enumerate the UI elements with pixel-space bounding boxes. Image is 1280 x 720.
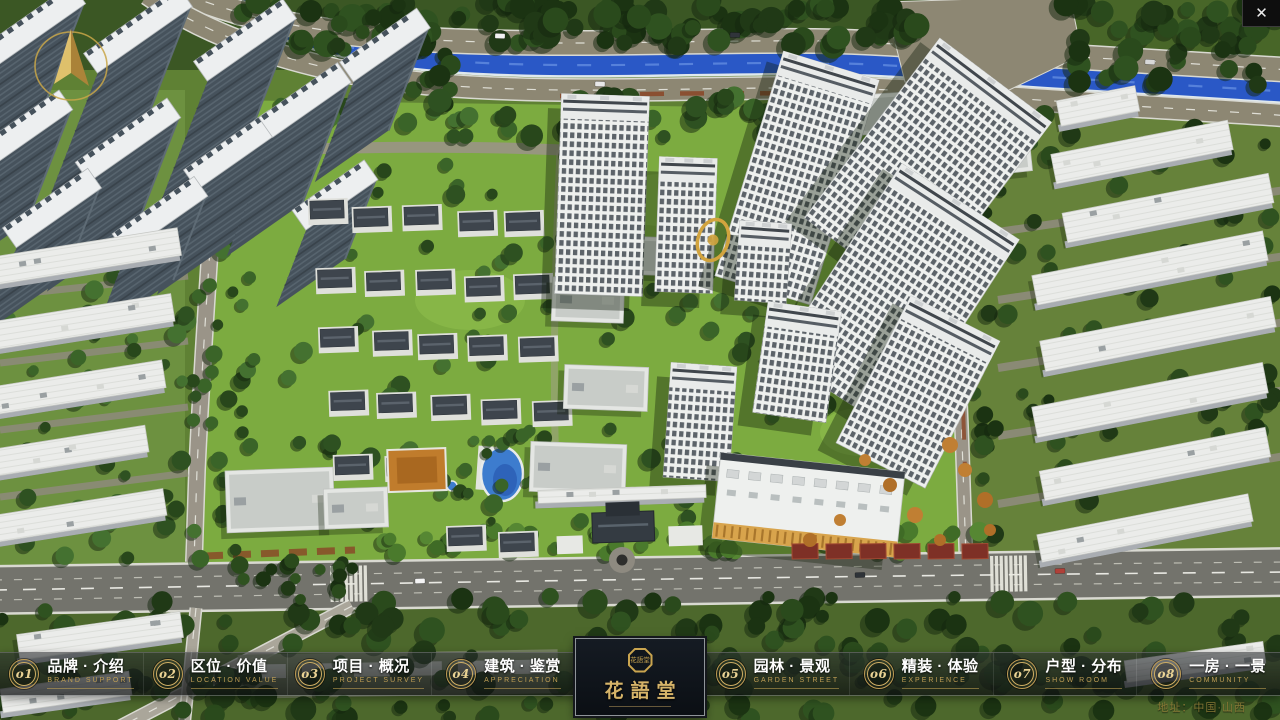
close-button[interactable]: ✕ — [1242, 0, 1280, 27]
nav-item-subtitle: LOCATION VALUE — [191, 677, 279, 685]
logo-divider — [609, 706, 671, 707]
nav-item-title: 项目 · 概况 — [333, 659, 424, 675]
nav-item-subtitle: GARDEN STREET — [754, 677, 840, 685]
brand-logo-title: 花語堂 — [597, 676, 682, 703]
nav-item-title: 一房 · 一景 — [1189, 659, 1266, 675]
close-icon: ✕ — [1255, 6, 1268, 21]
nav-number-badge: o5 — [716, 659, 746, 689]
nav-number-badge: o8 — [1151, 659, 1181, 689]
nav-number-badge: o4 — [446, 659, 476, 689]
nav-item-brand-intro[interactable]: o1 品牌 · 介绍 BRAND SUPPORT — [9, 659, 133, 689]
nav-item-title: 建筑 · 鉴赏 — [484, 659, 561, 675]
nav-item-subtitle: COMMUNITY — [1189, 677, 1266, 685]
nav-number-badge: o1 — [9, 659, 39, 689]
nav-item-subtitle: EXPERIENCE — [902, 677, 979, 685]
project-address: 地址：中国·山西 — [1157, 699, 1246, 715]
nav-item-title: 品牌 · 介绍 — [47, 659, 133, 675]
nav-item-architecture-appreciation[interactable]: o4 建筑 · 鉴赏 APPRECIATION — [446, 659, 561, 689]
brand-seal-icon: 花語堂 — [628, 648, 653, 673]
nav-number-badge: o7 — [1007, 659, 1037, 689]
nav-item-one-room-one-view[interactable]: o8 一房 · 一景 COMMUNITY — [1151, 659, 1266, 689]
nav-item-decor-experience[interactable]: o6 精装 · 体验 EXPERIENCE — [864, 659, 979, 689]
nav-item-location-value[interactable]: o2 区位 · 价值 LOCATION VALUE — [153, 659, 279, 689]
nav-group-left: o1 品牌 · 介绍 BRAND SUPPORT o2 区位 · 价值 LOCA… — [0, 653, 575, 695]
nav-item-subtitle: PROJECT SURVEY — [333, 677, 424, 685]
nav-group-right: o5 园林 · 景观 GARDEN STREET o6 精装 · 体验 EXPE… — [705, 653, 1280, 695]
nav-item-floorplan-distribution[interactable]: o7 户型 · 分布 SHOW ROOM — [1007, 659, 1122, 689]
nav-item-title: 区位 · 价值 — [191, 659, 279, 675]
nav-item-project-overview[interactable]: o3 项目 · 概况 PROJECT SURVEY — [295, 659, 424, 689]
nav-item-subtitle: SHOW ROOM — [1045, 677, 1122, 685]
logo-panel[interactable]: 花語堂 花語堂 — [575, 638, 705, 716]
nav-item-subtitle: BRAND SUPPORT — [47, 677, 133, 685]
nav-item-title: 户型 · 分布 — [1045, 659, 1122, 675]
nav-item-title: 精装 · 体验 — [902, 659, 979, 675]
bottom-navbar: o1 品牌 · 介绍 BRAND SUPPORT o2 区位 · 价值 LOCA… — [0, 652, 1280, 696]
nav-item-subtitle: APPRECIATION — [484, 677, 561, 685]
nav-number-badge: o3 — [295, 659, 325, 689]
aerial-map-view[interactable] — [0, 0, 1280, 720]
nav-item-title: 园林 · 景观 — [754, 659, 840, 675]
nav-item-garden-landscape[interactable]: o5 园林 · 景观 GARDEN STREET — [716, 659, 840, 689]
nav-number-badge: o6 — [864, 659, 894, 689]
presentation-stage: ✕ o1 品牌 · 介绍 BRAND SUPPORT o2 区位 · 价值 — [0, 0, 1280, 720]
nav-number-badge: o2 — [153, 659, 183, 689]
